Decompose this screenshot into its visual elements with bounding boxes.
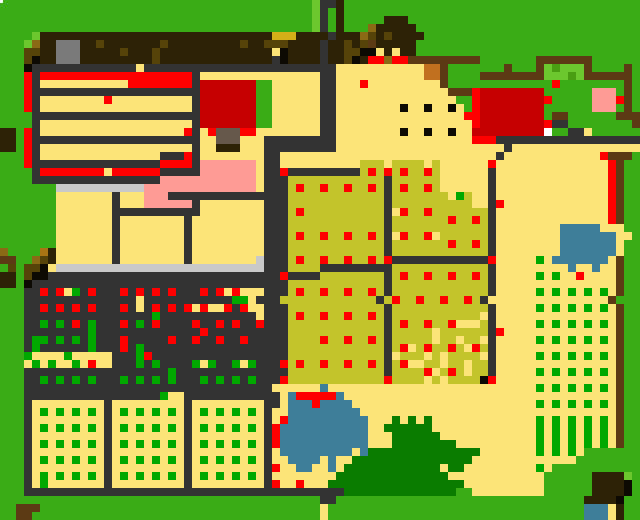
farm-map[interactable] — [0, 0, 640, 520]
game-viewport — [0, 0, 640, 520]
white-speck — [0, 0, 3, 3]
